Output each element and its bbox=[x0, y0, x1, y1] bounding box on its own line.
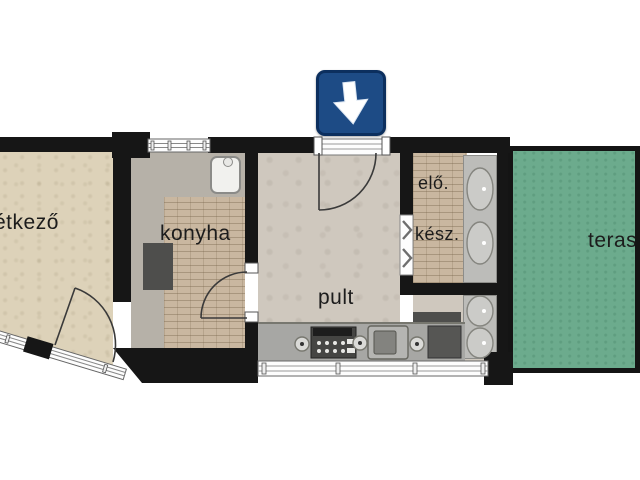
fridge bbox=[143, 243, 173, 290]
wall-right-outer bbox=[497, 153, 508, 383]
faucet-icon bbox=[223, 157, 233, 167]
wall-pult-elo-lower bbox=[400, 275, 413, 295]
wall-top-etkezo bbox=[0, 137, 131, 152]
konyha-label: konyha bbox=[160, 222, 231, 246]
konyha-brick-floor bbox=[164, 197, 245, 357]
elo-label: elő. bbox=[418, 173, 449, 194]
terrace-label: terasz bbox=[588, 229, 640, 253]
etkezo-label: étkező bbox=[0, 211, 59, 235]
pult-label: pult bbox=[318, 286, 354, 310]
folding-door-elo bbox=[400, 215, 413, 275]
wall-top-right bbox=[387, 137, 510, 153]
window-konyha bbox=[148, 139, 210, 152]
wall-kesz-bath-divider bbox=[400, 283, 508, 295]
down-arrow-icon bbox=[325, 77, 378, 130]
room-terrace: terasz bbox=[508, 146, 640, 373]
vanity-counter-bottom bbox=[463, 295, 497, 359]
wall-etkezo-konyha bbox=[113, 152, 131, 302]
wall-top-middle bbox=[208, 137, 317, 153]
entrance-sign bbox=[316, 70, 386, 136]
floor-plan: terasz bbox=[0, 0, 640, 480]
wall-konyha-pult-upper bbox=[245, 148, 258, 263]
kitchen-sink bbox=[210, 156, 241, 194]
wall-konyha-pult-lower bbox=[245, 322, 258, 382]
window-pult-bottom bbox=[258, 361, 488, 376]
kesz-label: kész. bbox=[415, 224, 460, 245]
vanity-counter-top bbox=[463, 155, 497, 283]
room-etkezo-floor bbox=[0, 152, 118, 368]
wall-pult-elo-upper bbox=[400, 153, 413, 215]
kitchen-counter bbox=[258, 322, 465, 362]
